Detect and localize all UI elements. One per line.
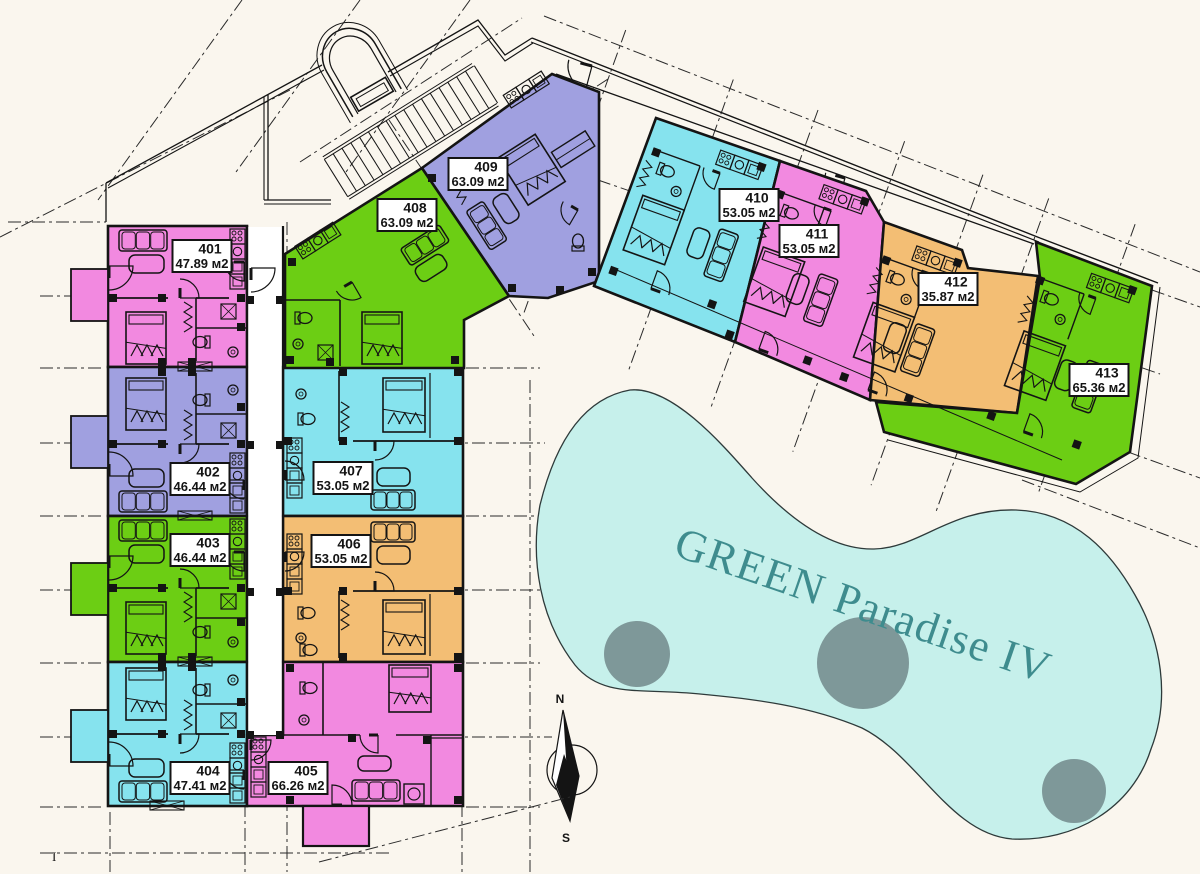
svg-text:407: 407 <box>339 463 363 479</box>
svg-text:402: 402 <box>196 464 220 480</box>
svg-text:405: 405 <box>294 763 318 779</box>
svg-text:S: S <box>562 831 570 845</box>
svg-text:47.41 м2: 47.41 м2 <box>174 778 227 793</box>
svg-text:53.05 м2: 53.05 м2 <box>315 551 368 566</box>
svg-text:403: 403 <box>196 535 220 551</box>
svg-text:I: I <box>52 849 56 864</box>
svg-text:413: 413 <box>1095 365 1119 381</box>
svg-text:406: 406 <box>337 536 361 552</box>
svg-text:35.87 м2: 35.87 м2 <box>922 289 975 304</box>
svg-text:411: 411 <box>806 226 829 242</box>
svg-text:409: 409 <box>474 159 498 175</box>
svg-text:404: 404 <box>196 763 220 779</box>
svg-text:66.26 м2: 66.26 м2 <box>272 778 325 793</box>
svg-text:53.05 м2: 53.05 м2 <box>317 478 370 493</box>
svg-text:46.44 м2: 46.44 м2 <box>174 479 227 494</box>
svg-text:46.44 м2: 46.44 м2 <box>174 550 227 565</box>
svg-text:53.05 м2: 53.05 м2 <box>723 205 776 220</box>
svg-text:N: N <box>556 692 565 706</box>
svg-text:65.36 м2: 65.36 м2 <box>1073 380 1126 395</box>
svg-text:401: 401 <box>198 241 222 257</box>
svg-text:63.09 м2: 63.09 м2 <box>452 174 505 189</box>
svg-text:53.05 м2: 53.05 м2 <box>783 241 836 256</box>
svg-text:63.09 м2: 63.09 м2 <box>381 215 434 230</box>
svg-text:408: 408 <box>403 200 427 216</box>
svg-text:47.89 м2: 47.89 м2 <box>176 256 229 271</box>
svg-text:410: 410 <box>745 190 769 206</box>
svg-text:412: 412 <box>944 274 968 290</box>
